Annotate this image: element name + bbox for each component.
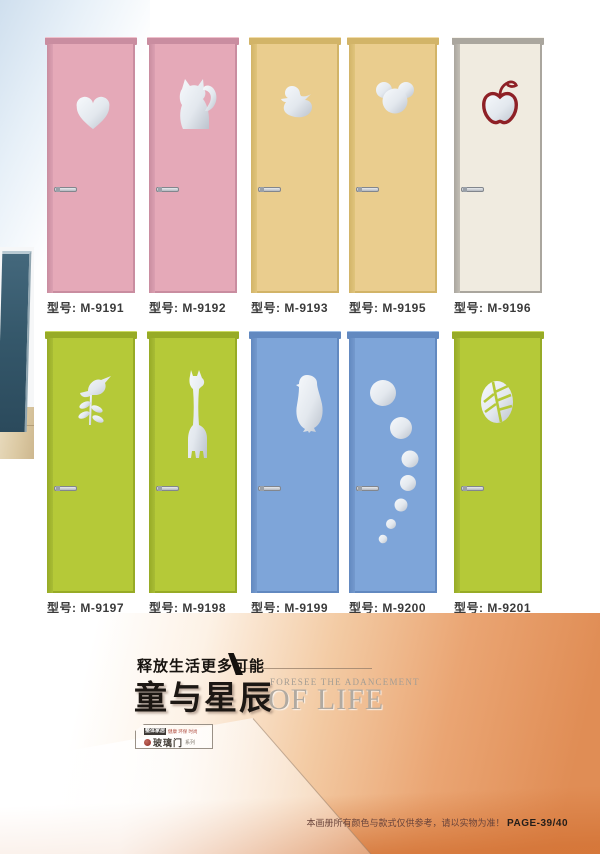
door-handle (258, 486, 281, 491)
mickey-cutout-icon (375, 81, 415, 114)
leaf-cutout-icon (480, 380, 514, 424)
series-brand-name: 玻璃门 (153, 736, 183, 749)
model-label: 型号: M-9196 (454, 299, 531, 316)
door-handle (54, 486, 77, 491)
door-m9191 (47, 37, 135, 293)
bubbles-cutout-icon (365, 375, 423, 547)
cat-cutout-icon (177, 77, 219, 133)
door-leaf (257, 44, 339, 293)
series-suffix: 系列 (185, 739, 195, 746)
door-m9198 (149, 331, 237, 593)
series-logo-line1: 整体家居 健康 环保 时尚 (144, 727, 209, 735)
model-label: 型号: M-9192 (149, 299, 226, 316)
footer-disclaimer: 本画册所有颜色与款式仅供参考，请以实物为准！ (307, 818, 505, 828)
apple-cutout-icon (481, 79, 519, 127)
banner-subtitle-large: OF LIFE (268, 683, 384, 717)
series-logo-box: 整体家居 健康 环保 时尚 玻璃门 系列 (135, 724, 213, 749)
model-label: 型号: M-9195 (349, 299, 426, 316)
door-handle (258, 187, 281, 192)
door-m9199 (251, 331, 339, 593)
door-handle (156, 486, 179, 491)
door-m9192 (149, 37, 237, 293)
model-label: 型号: M-9191 (47, 299, 124, 316)
door-m9193 (251, 37, 339, 293)
door-leaf (53, 44, 135, 293)
door-m9201 (454, 331, 542, 593)
door-handle (356, 486, 379, 491)
giraffe-cutout-icon (183, 368, 213, 463)
door-handle (156, 187, 179, 192)
series-logo-line2: 玻璃门 系列 (144, 736, 209, 749)
banner-title: 童与星辰 (134, 671, 274, 719)
door-m9195 (349, 37, 437, 293)
series-logo-red-text: 健康 环保 时尚 (168, 728, 198, 734)
penguin-cutout-icon (295, 373, 325, 435)
page-number: PAGE-39/40 (507, 818, 568, 829)
door-handle (461, 187, 484, 192)
series-logo-chip: 整体家居 (144, 728, 166, 735)
heart-cutout-icon (74, 96, 112, 131)
door-m9197 (47, 331, 135, 593)
bottom-banner: 释放生活更多可能 童与星辰 FORESEE THE ADANCEMENT OF … (0, 613, 600, 854)
footer-note: 本画册所有颜色与款式仅供参考，请以实物为准！ PAGE-39/40 (307, 816, 568, 829)
catalog-page: 型号: M-9191 型号: M-9192 型号: M-9193 型号: M-9… (0, 0, 600, 854)
room-photo-fragment (0, 247, 34, 459)
door-handle (461, 486, 484, 491)
door-handle (356, 187, 379, 192)
brand-dot-icon (144, 739, 151, 746)
door-leaf (460, 338, 542, 593)
duck-cutout-icon (279, 84, 313, 118)
teal-door-slab (0, 251, 31, 432)
door-handle (54, 187, 77, 192)
door-m9200 (349, 331, 437, 593)
bird-branch-cutout-icon (78, 373, 112, 429)
model-label: 型号: M-9193 (251, 299, 328, 316)
door-m9196 (454, 37, 542, 293)
